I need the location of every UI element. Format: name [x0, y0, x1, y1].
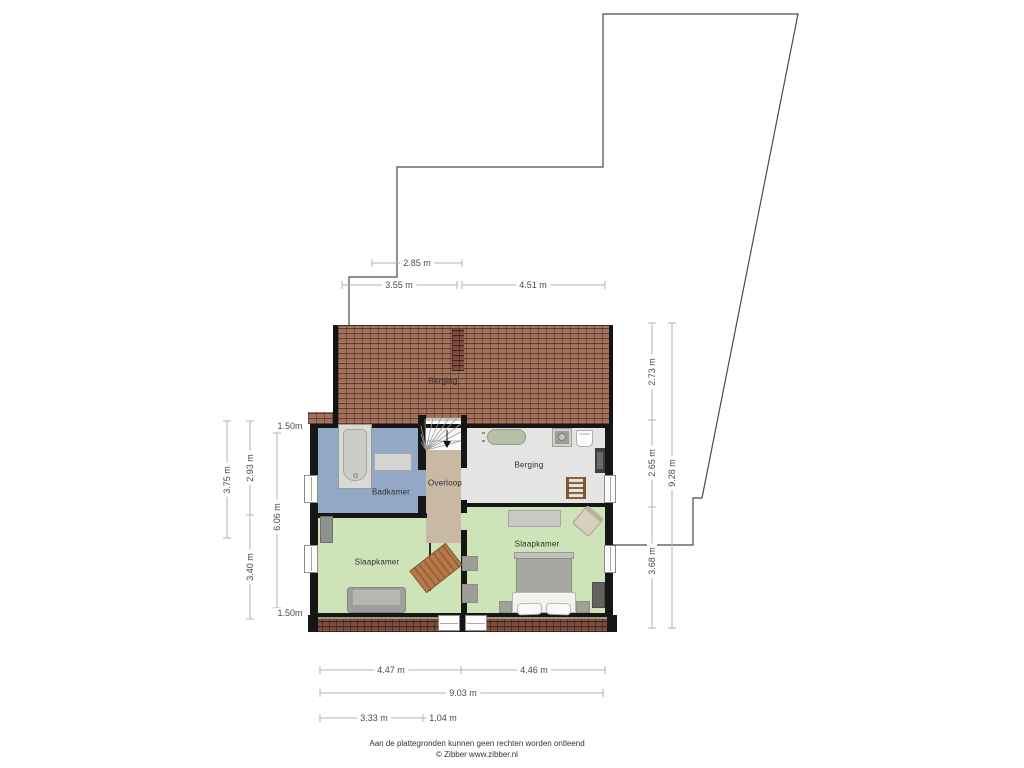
dim-left-inner: 6.06 m	[272, 500, 282, 534]
overloop-label: Overloop	[428, 479, 462, 488]
dim-left-outer: 3.75 m	[222, 463, 232, 497]
slaapkamer-right-label: Slaapkamer	[515, 540, 560, 549]
dim-top-right: 4.51 m	[516, 280, 550, 290]
footer-credit: © Zibber www.zibber.nl	[150, 750, 804, 761]
dim-right-upper: 2.73 m	[647, 355, 657, 389]
dim-top-left: 3.55 m	[382, 280, 416, 290]
dim-top-notch: 2.85 m	[400, 258, 434, 268]
dim-bottom-part2: 1.04 m	[426, 713, 460, 723]
staircase-treads	[421, 418, 461, 450]
footer-disclaimer: Aan de plattegronden kunnen geen rechten…	[150, 739, 804, 750]
footer: Aan de plattegronden kunnen geen rechten…	[150, 739, 804, 761]
dim-right-lower: 3.68 m	[647, 544, 657, 578]
plan-linework	[0, 0, 1024, 768]
badkamer-label: Badkamer	[372, 488, 410, 497]
dim-bottom-left: 4.47 m	[374, 665, 408, 675]
plot-outline	[349, 14, 798, 545]
dim-left-knee-bottom: 1.50m	[274, 608, 305, 618]
dim-bottom-part1: 3.33 m	[357, 713, 391, 723]
floorplan-canvas: Berging	[0, 0, 1024, 768]
dimension-lines	[223, 259, 676, 722]
berging-label: Berging	[515, 461, 544, 470]
dim-left-lower: 3.40 m	[245, 550, 255, 584]
dim-left-upper: 2.93 m	[245, 451, 255, 485]
slaapkamer-left-label: Slaapkamer	[355, 558, 400, 567]
dim-bottom-right: 4.46 m	[517, 665, 551, 675]
dim-bottom-total: 9.03 m	[446, 688, 480, 698]
dim-right-middle: 2.65 m	[647, 446, 657, 480]
dim-left-knee-top: 1.50m	[274, 421, 305, 431]
dim-right-total: 9.28 m	[667, 456, 677, 490]
